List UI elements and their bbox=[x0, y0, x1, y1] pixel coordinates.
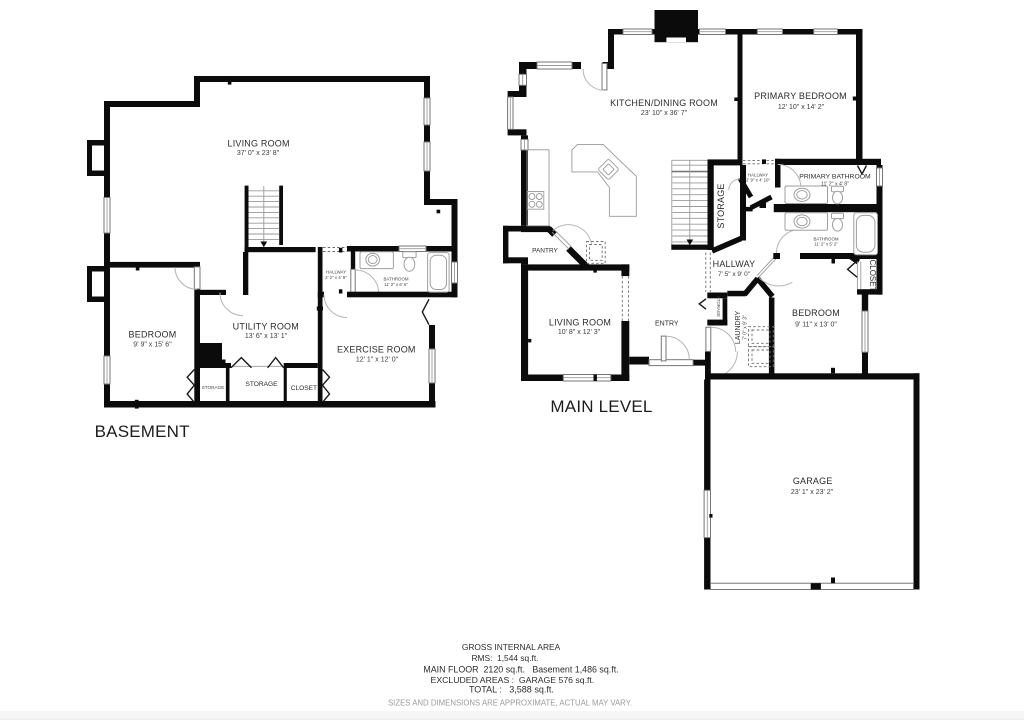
svg-text:7' 0" x 9' 3": 7' 0" x 9' 3" bbox=[743, 315, 749, 340]
svg-text:MAIN LEVEL: MAIN LEVEL bbox=[550, 397, 652, 416]
svg-text:STORAGE: STORAGE bbox=[716, 183, 726, 228]
svg-text:12' 1" x 12' 0": 12' 1" x 12' 0" bbox=[356, 357, 399, 364]
svg-text:RMS: 1,544 sq.ft.: RMS: 1,544 sq.ft. bbox=[471, 653, 538, 663]
svg-text:STORAGE: STORAGE bbox=[245, 381, 278, 388]
svg-text:GARAGE: GARAGE bbox=[793, 476, 833, 486]
svg-text:UTILITY ROOM: UTILITY ROOM bbox=[233, 322, 299, 332]
svg-text:2' 2" x 4' 9": 2' 2" x 4' 9" bbox=[325, 275, 347, 280]
svg-text:11' 2" x 6' 6": 11' 2" x 6' 6" bbox=[384, 282, 408, 287]
svg-text:37' 0" x 23' 8": 37' 0" x 23' 8" bbox=[237, 150, 280, 157]
svg-text:HALLWAY: HALLWAY bbox=[326, 270, 346, 275]
svg-text:11' 2" x 5' 2": 11' 2" x 5' 2" bbox=[814, 242, 838, 247]
svg-text:ENTRY: ENTRY bbox=[655, 321, 679, 328]
svg-text:23' 10" x 36' 7": 23' 10" x 36' 7" bbox=[641, 110, 688, 117]
svg-text:BEDROOM: BEDROOM bbox=[129, 330, 177, 340]
svg-text:PRIMARY BEDROOM: PRIMARY BEDROOM bbox=[754, 91, 847, 101]
svg-text:13' 6" x 13' 1": 13' 6" x 13' 1" bbox=[245, 333, 288, 340]
svg-text:LIVING ROOM: LIVING ROOM bbox=[227, 139, 289, 149]
svg-text:9' 9" x 15' 6": 9' 9" x 15' 6" bbox=[133, 342, 172, 349]
svg-text:11' 2" x 4' 8": 11' 2" x 4' 8" bbox=[821, 182, 849, 188]
svg-text:TOTAL : 3,588 sq.ft.: TOTAL : 3,588 sq.ft. bbox=[469, 685, 554, 695]
svg-text:EXERCISE ROOM: EXERCISE ROOM bbox=[337, 345, 416, 355]
svg-text:PANTRY: PANTRY bbox=[532, 248, 558, 255]
svg-text:23' 1" x 23' 2": 23' 1" x 23' 2" bbox=[791, 489, 834, 496]
svg-text:HALLWAY: HALLWAY bbox=[713, 259, 756, 269]
svg-text:BEDROOM: BEDROOM bbox=[792, 308, 840, 318]
svg-text:PRIMARY BATHROOM: PRIMARY BATHROOM bbox=[799, 174, 871, 181]
svg-text:9' 11" x 13' 0": 9' 11" x 13' 0" bbox=[795, 322, 837, 329]
svg-text:BATHROOM: BATHROOM bbox=[383, 277, 408, 282]
svg-text:CLOSET: CLOSET bbox=[291, 385, 317, 392]
svg-text:7' 5" x 9' 0": 7' 5" x 9' 0" bbox=[718, 271, 751, 278]
svg-text:STORAGE: STORAGE bbox=[202, 385, 225, 390]
svg-text:EXCLUDED AREAS : GARAGE 576 s: EXCLUDED AREAS : GARAGE 576 sq.ft. bbox=[431, 675, 595, 685]
svg-text:BASEMENT: BASEMENT bbox=[95, 422, 190, 441]
svg-text:STORAGE: STORAGE bbox=[716, 296, 721, 317]
svg-text:CLOSET: CLOSET bbox=[868, 259, 877, 291]
svg-text:SIZES AND DIMENSIONS ARE APPRO: SIZES AND DIMENSIONS ARE APPROXIMATE, AC… bbox=[388, 699, 632, 708]
svg-text:KITCHEN/DINING ROOM: KITCHEN/DINING ROOM bbox=[610, 98, 718, 108]
svg-text:GROSS INTERNAL AREA: GROSS INTERNAL AREA bbox=[462, 642, 561, 652]
svg-text:MAIN FLOOR 2120 sq.ft. Base: MAIN FLOOR 2120 sq.ft. Basement 1,486 sq… bbox=[423, 665, 618, 675]
svg-text:10' 8" x 12' 3": 10' 8" x 12' 3" bbox=[558, 329, 601, 336]
svg-text:LIVING ROOM: LIVING ROOM bbox=[549, 318, 611, 328]
svg-text:LAUNDRY: LAUNDRY bbox=[735, 311, 742, 345]
svg-text:2' 9" x 4' 10": 2' 9" x 4' 10" bbox=[746, 178, 771, 183]
svg-text:12' 10" x 14' 2": 12' 10" x 14' 2" bbox=[778, 104, 825, 111]
